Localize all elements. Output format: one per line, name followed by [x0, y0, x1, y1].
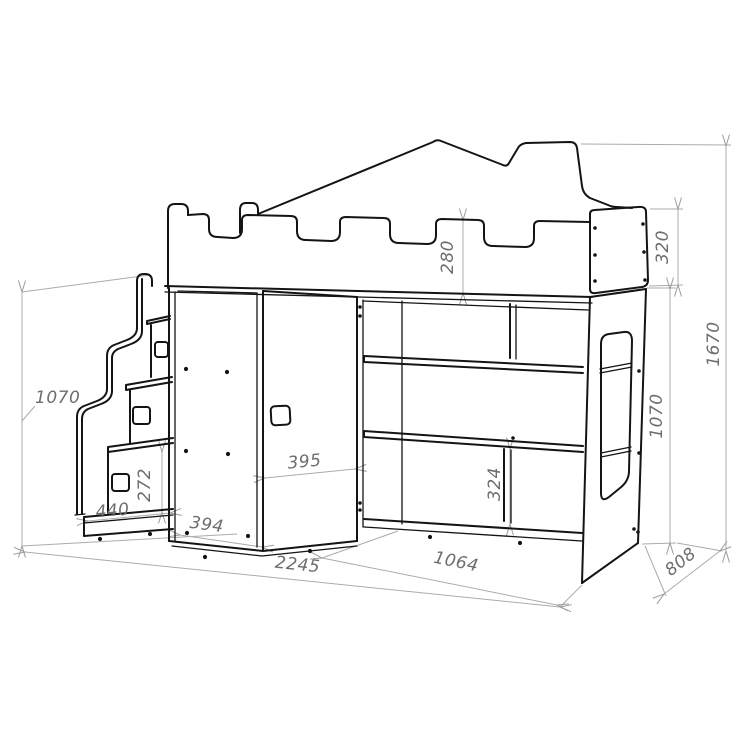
- castle-back-panel: [258, 140, 632, 214]
- dim-corner-door-width: 395: [287, 450, 323, 473]
- dim-stairs-height: 1070: [35, 388, 80, 408]
- dim-total-depth: 808: [661, 544, 700, 581]
- fitting-dots: [98, 222, 647, 559]
- dim-shelf-opening-height: 324: [485, 467, 505, 501]
- step1-handle-cutout: [112, 474, 129, 491]
- dim-step-width: 440: [95, 500, 131, 523]
- step3-handle-cutout: [155, 342, 168, 357]
- loft-bed-diagram: 1070 2245 1064 808 1670 1070 320 280 324…: [0, 0, 750, 750]
- dim-total-height: 1670: [704, 321, 724, 366]
- dim-guard-rail-height: 280: [438, 240, 458, 274]
- castle-guard-rail: [188, 214, 589, 247]
- side-panel: [582, 289, 646, 583]
- bed-end-panel: [590, 207, 648, 293]
- dim-step-rise: 272: [135, 468, 155, 502]
- dim-wardrobe-door-width: 394: [188, 513, 224, 538]
- dim-shelf-unit-width: 1064: [432, 548, 480, 577]
- side-panel-window-cutout: [601, 332, 632, 499]
- wardrobe-door-handle: [271, 405, 291, 425]
- dim-bed-box-height: 320: [653, 230, 673, 264]
- dim-total-width: 2245: [274, 553, 321, 578]
- technical-drawing: 1070 2245 1064 808 1670 1070 320 280 324…: [0, 0, 750, 750]
- shelf-unit: [363, 301, 588, 541]
- extension-lines: [22, 144, 731, 607]
- dimension-lines: [22, 146, 726, 607]
- dim-under-bed-height: 1070: [647, 393, 667, 438]
- left-post: [168, 204, 188, 288]
- step2-handle-cutout: [133, 407, 150, 424]
- bed-frame: [165, 140, 648, 303]
